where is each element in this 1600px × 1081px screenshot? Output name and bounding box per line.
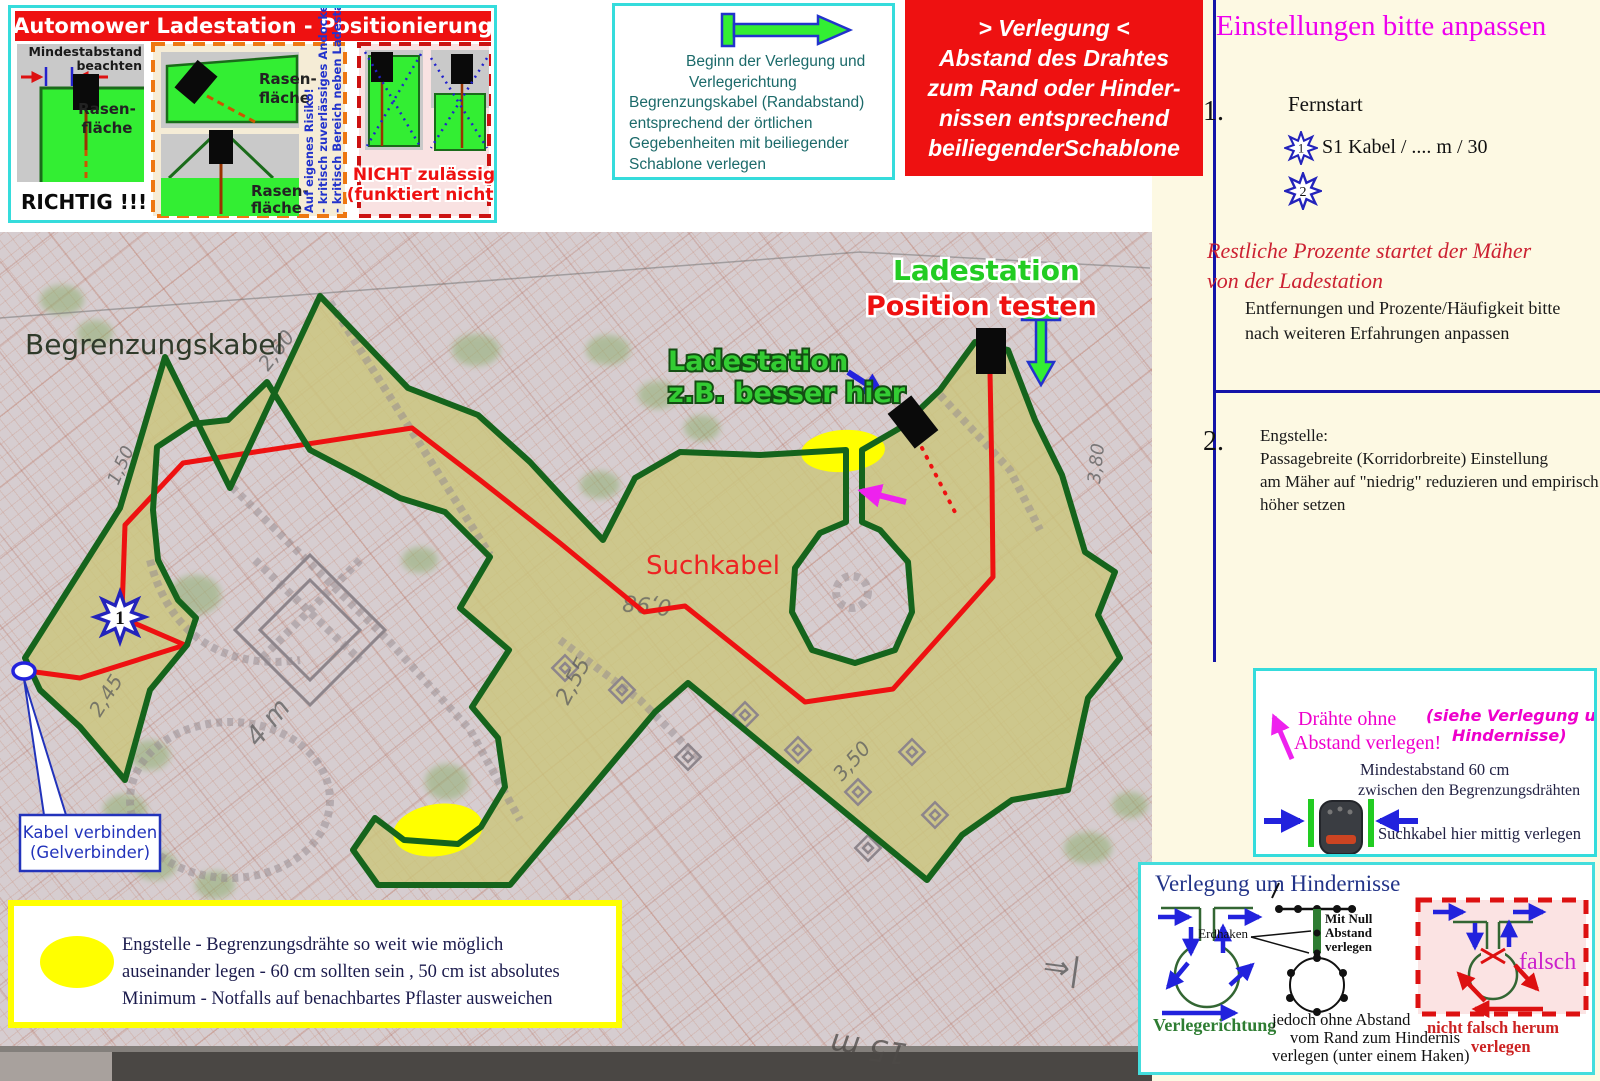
- red-note-line: beiliegenderSchablone: [905, 133, 1203, 163]
- obstacles-diagram: Verlegung um Hindernisse Verlegerichtung: [1141, 865, 1592, 1072]
- wire-bar-left: [1308, 799, 1314, 847]
- laying-start-line: Schablone verlegen: [629, 155, 865, 176]
- red-note-line: nissen entsprechend: [905, 103, 1203, 133]
- station-icon: [209, 130, 233, 164]
- settings-item1-number: 1.: [1203, 96, 1224, 128]
- obstacles-title: Verlegung um Hindernisse: [1155, 871, 1400, 896]
- settings-red-note-line2: von der Ladestation: [1207, 266, 1531, 296]
- zero-distance-label-2: Abstand: [1325, 925, 1373, 940]
- station-icon: [451, 54, 473, 84]
- connect-callout-line1: Kabel verbinden: [23, 823, 157, 842]
- station-better-label-2: z.B. besser hier: [668, 378, 906, 409]
- laying-start-line: Gegebenheiten mit beiliegender: [629, 134, 865, 155]
- lawn-label-3: Rasen-: [251, 182, 309, 200]
- mower-image: [1320, 801, 1362, 854]
- settings-star-2-number: 2: [1299, 184, 1306, 200]
- laying-start-text: Beginn der Verlegung und Verlegerichtung…: [629, 52, 865, 175]
- handwriting: 0,98: [621, 589, 672, 619]
- settings-black-note-line2: nach weiteren Erfahrungen anpassen: [1245, 321, 1560, 346]
- see-obstacles-note-2: Hindernisse): [1452, 726, 1567, 745]
- settings-item1-label: Fernstart: [1288, 92, 1363, 117]
- infographic-root: 2,60 1,50 2,45 4 m 2,55 0,98 3,50 3,80 1…: [0, 0, 1600, 1081]
- see-obstacles-note-1: (siehe Verlegung um: [1426, 706, 1594, 725]
- boundary-cable-label: Begrenzungskabel: [25, 328, 283, 361]
- laying-start-box: Beginn der Verlegung und Verlegerichtung…: [612, 3, 895, 180]
- no-gap-arrow: [1274, 717, 1292, 759]
- settings-red-note-line1: Restliche Prozente startet der Mäher: [1207, 236, 1531, 266]
- wrong-note-2: verlegen: [1471, 1037, 1531, 1056]
- settings-star-1: 1: [1284, 131, 1318, 165]
- handwriting: ⇒|: [1041, 946, 1084, 989]
- erdhaken-label: Erdhaken: [1198, 926, 1248, 941]
- settings-star-1-number: 1: [1298, 141, 1304, 155]
- connect-callout-line2: (Gelverbinder): [30, 843, 150, 862]
- station-positioning-diagram: Automower Ladestation - Positionierung M…: [11, 8, 494, 220]
- risk-note-1: Auf eigenes Risiko!: [302, 88, 316, 213]
- red-note-line: zum Rand oder Hinder-: [905, 73, 1203, 103]
- no-gap-label-2: Abstand verlegen!: [1294, 732, 1441, 754]
- engstelle-note-text: Engstelle - Begrenzungsdrähte so weit wi…: [122, 932, 560, 1013]
- settings-item2-number: 2.: [1203, 426, 1224, 458]
- engstelle-note-line: Engstelle - Begrenzungsdrähte so weit wi…: [122, 932, 560, 959]
- settings-title: Einstellungen bitte anpassen: [1216, 10, 1546, 43]
- settings-star-2: 2: [1284, 172, 1322, 210]
- panel-divider-horizontal: [1213, 390, 1600, 393]
- panel-correct: Mindestabstand beachten Rasen- fläche RI…: [17, 44, 147, 214]
- lawn-label-1: Rasen-: [259, 70, 317, 88]
- waypoint-star-1: 1: [95, 592, 145, 642]
- min-distance-note-2: beachten: [76, 58, 142, 73]
- station-test-label-2: Position testen: [866, 291, 1097, 322]
- search-cable-middle-note: Suchkabel hier mittig verlegen: [1378, 824, 1581, 843]
- wrong-note-1: nicht falsch herum: [1427, 1018, 1559, 1037]
- direction-label: Verlegerichtung: [1153, 1015, 1276, 1035]
- search-cable-label: Suchkabel: [646, 551, 780, 581]
- obstacles-box: Verlegung um Hindernisse Verlegerichtung: [1138, 862, 1595, 1075]
- wire-distance-note-box: > Verlegung < Abstand des Drahtes zum Ra…: [905, 0, 1203, 176]
- photo-edge-strip: [0, 1046, 1152, 1052]
- keyhole-correct: [1161, 908, 1253, 1007]
- house-outline: [235, 555, 385, 705]
- laying-start-line: Beginn der Verlegung und: [629, 52, 865, 73]
- red-note-line: > Verlegung <: [905, 13, 1203, 43]
- lawn-label-4: fläche: [251, 199, 302, 217]
- red-note-line: Abstand des Drahtes: [905, 43, 1203, 73]
- station-icon: [371, 52, 393, 82]
- charging-station-test: [976, 328, 1006, 374]
- zero-distance-label-3: verlegen: [1325, 939, 1373, 954]
- handwriting: 4 m: [240, 693, 297, 753]
- engstelle-note-box: Engstelle - Begrenzungsdrähte so weit wi…: [8, 900, 622, 1028]
- handwriting: 3,80: [1084, 442, 1109, 484]
- falsch-label: falsch: [1519, 949, 1576, 975]
- lawn-swatch: [435, 94, 485, 150]
- station-better-label-1: Ladestation: [668, 346, 848, 377]
- engstelle-note-line: Minimum - Notfalls auf benachbartes Pfla…: [122, 986, 560, 1013]
- waypoint-star-1-number: 1: [115, 608, 125, 629]
- panel-not-allowed: NICHT zulässig (funktiert nicht): [347, 44, 494, 216]
- mid-note-3: verlegen (unter einem Haken): [1272, 1046, 1469, 1065]
- settings-item2-line: Passagebreite (Korridorbreite) Einstellu…: [1260, 447, 1599, 470]
- wire-bar-right: [1368, 799, 1374, 847]
- engstelle-note-line: auseinander legen - 60 cm sollten sein ,…: [122, 959, 560, 986]
- mid-note-1: jedoch ohne Abstand: [1271, 1010, 1411, 1029]
- min-distance-note-1: Mindestabstand: [28, 44, 142, 59]
- settings-item2-line: Engstelle:: [1260, 424, 1599, 447]
- settings-black-note-line1: Entfernungen und Prozente/Häufigkeit bit…: [1245, 296, 1560, 321]
- station-positioning-box: Automower Ladestation - Positionierung M…: [8, 5, 497, 223]
- settings-item2-text: Engstelle: Passagebreite (Korridorbreite…: [1260, 424, 1599, 516]
- risk-note-2: - kritisch zuverlässiges Andocken: [316, 8, 330, 213]
- min-60cm-line2: zwischen den Begrenzungsdrähten: [1358, 782, 1580, 799]
- no-gap-label-1: Drähte ohne: [1298, 708, 1396, 730]
- risk-note-3: - kritisch Bereich neben Ladestation: [330, 8, 344, 213]
- verdict-correct: RICHTIG !!!: [21, 190, 147, 214]
- wire-spacing-diagram: Drähte ohne Abstand verlegen! (siehe Ver…: [1256, 671, 1594, 854]
- laying-start-line: Begrenzungskabel (Randabstand): [629, 93, 865, 114]
- laying-direction-icon: [720, 11, 865, 51]
- wire-spacing-box: Drähte ohne Abstand verlegen! (siehe Ver…: [1253, 668, 1597, 857]
- lawn-label-1: Rasen-: [78, 100, 136, 118]
- laying-start-line: entsprechend der örtlichen: [629, 114, 865, 135]
- laying-start-line: Verlegerichtung: [629, 73, 865, 94]
- settings-red-note: Restliche Prozente startet der Mäher von…: [1207, 236, 1531, 296]
- settings-star-1-text: S1 Kabel / .... m / 30: [1322, 136, 1488, 159]
- lawn-label-2: fläche: [82, 119, 133, 137]
- photo-dark-band: [0, 1052, 1152, 1081]
- min-60cm-line1: Mindestabstand 60 cm: [1360, 760, 1510, 779]
- station-test-label-1: Ladestation: [893, 254, 1080, 287]
- settings-item2-line: am Mäher auf "niedrig" reduzieren und em…: [1260, 470, 1599, 493]
- photo-dark-band-corner: [0, 1052, 112, 1081]
- engstelle-highlight-icon: [40, 936, 114, 988]
- zero-distance-label-1: Mit Null: [1325, 911, 1373, 926]
- settings-item2-line: höher setzen: [1260, 493, 1599, 516]
- settings-black-note: Entfernungen und Prozente/Häufigkeit bit…: [1245, 296, 1560, 346]
- verdict-not-allowed-2: (funktiert nicht): [347, 185, 494, 205]
- cable-connector-marker: [13, 663, 35, 679]
- positioning-title: Automower Ladestation - Positionierung: [13, 14, 493, 38]
- verdict-not-allowed-1: NICHT zulässig: [353, 165, 494, 185]
